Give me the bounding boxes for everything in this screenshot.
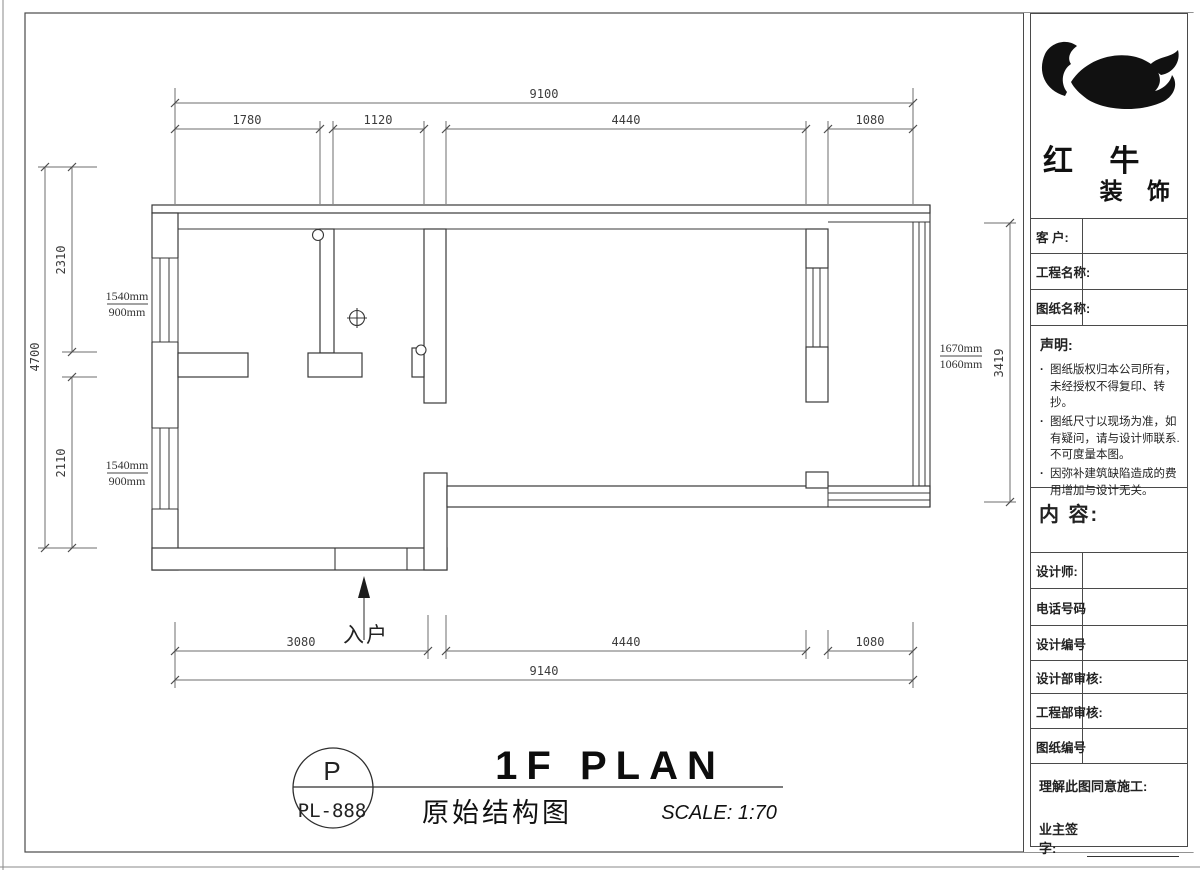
field-client-label: 客 户: (1031, 219, 1083, 253)
inner-frame (25, 13, 1193, 852)
plan-title-cn: 原始结构图 (422, 798, 572, 828)
window-tag-3-h: 1060mm (940, 357, 983, 371)
field-engineering-dept-review-label: 工程部审核: (1031, 694, 1083, 728)
notice-title: 声明: (1040, 335, 1180, 355)
field-designer: 设计师: (1031, 553, 1187, 589)
dim-top-seg2: 1120 (364, 113, 393, 127)
dimensions-top (171, 88, 917, 204)
field-drawing-no-value (1083, 729, 1187, 763)
pipe-circle-icon (416, 345, 426, 355)
field-design-no-label: 设计编号 (1031, 626, 1083, 660)
notice-item-text: 图纸尺寸以现场为准，如有疑问，请与设计师联系. 不可度量本图。 (1050, 414, 1180, 464)
drawing-sheet: 9100 1780 1120 4440 1080 4700 2310 2110 (0, 0, 1200, 870)
title-block-column: 红 牛 装 饰 客 户: 工程名称: 图纸名称: 声明: · 图纸版权归本公司所… (1030, 13, 1188, 847)
notice-item: · 图纸尺寸以现场为准，如有疑问，请与设计师联系. 不可度量本图。 (1040, 414, 1180, 464)
dim-top-seg1: 1780 (233, 113, 262, 127)
field-phone: 电话号码 (1031, 589, 1187, 626)
field-design-dept-review: 设计部审核: (1031, 661, 1187, 694)
window-tag-1-h: 900mm (109, 305, 146, 319)
field-client: 客 户: (1031, 219, 1187, 254)
window-tag-1-w: 1540mm (106, 289, 149, 303)
owner-signature-label: 业主签字: (1039, 819, 1083, 857)
field-drawing-name: 图纸名称: (1031, 290, 1187, 326)
dim-bottom-seg3: 1080 (856, 635, 885, 649)
plan-title-en: 1F PLAN (495, 744, 725, 788)
field-drawing-name-label: 图纸名称: (1031, 290, 1083, 325)
window-size-tags: 1540mm 900mm 1540mm 900mm 1670mm 1060mm (106, 289, 983, 488)
window-tag-2-h: 900mm (109, 474, 146, 488)
bullet-icon: · (1040, 362, 1050, 412)
field-designer-value (1083, 553, 1187, 588)
notice-box: 声明: · 图纸版权归本公司所有，未经授权不得复印、转抄。 · 图纸尺寸以现场为… (1031, 326, 1187, 488)
window-tag-2-w: 1540mm (106, 458, 149, 472)
bullet-icon: · (1040, 414, 1050, 464)
field-engineering-dept-review: 工程部审核: (1031, 694, 1187, 729)
brand-subname: 装 饰 (1100, 172, 1179, 206)
dim-top-overall: 9100 (530, 87, 559, 101)
brand-logo-box: 红 牛 装 饰 (1031, 14, 1187, 219)
plan-walls (152, 205, 930, 570)
content-box: 内 容: (1031, 488, 1187, 553)
signature-line (1087, 842, 1179, 857)
dim-left-seg1: 2310 (54, 246, 68, 275)
field-phone-value (1083, 589, 1187, 625)
field-designer-label: 设计师: (1031, 553, 1083, 588)
dim-bottom-seg1: 3080 (287, 635, 316, 649)
dim-top-seg4: 1080 (856, 113, 885, 127)
field-engineering-dept-review-value (1083, 694, 1187, 728)
approval-statement: 理解此图同意施工: (1039, 776, 1179, 795)
bull-logo-icon (1031, 36, 1187, 136)
content-label: 内 容: (1039, 504, 1099, 526)
entrance-arrow-icon (358, 576, 370, 598)
dim-top-seg3: 4440 (612, 113, 641, 127)
entrance-marker: 入户 (343, 576, 389, 647)
dim-right-overall: 3419 (992, 349, 1006, 378)
dim-left-overall: 4700 (28, 343, 42, 372)
approval-box: 理解此图同意施工: 业主签字: (1031, 764, 1187, 846)
field-project-name: 工程名称: (1031, 254, 1187, 290)
field-drawing-no-label: 图纸编号 (1031, 729, 1083, 763)
field-design-no-value (1083, 626, 1187, 660)
plan-scale: SCALE: 1:70 (661, 802, 777, 824)
notice-item: · 图纸版权归本公司所有，未经授权不得复印、转抄。 (1040, 362, 1180, 412)
notice-item-text: 图纸版权归本公司所有，未经授权不得复印、转抄。 (1050, 362, 1180, 412)
field-project-name-value (1083, 254, 1187, 289)
bubble-letter: P (323, 756, 340, 786)
field-project-name-label: 工程名称: (1031, 254, 1083, 289)
dim-left-seg2: 2110 (54, 449, 68, 478)
dimensions-left (38, 163, 97, 552)
pipe-circle-icon (313, 230, 324, 241)
field-drawing-name-value (1083, 290, 1187, 325)
bubble-code: PL-888 (298, 800, 367, 822)
floor-drain-icon (347, 308, 367, 328)
field-client-value (1083, 219, 1187, 253)
dim-bottom-seg2: 4440 (612, 635, 641, 649)
entrance-label: 入户 (343, 624, 389, 647)
floor-plan-canvas: 9100 1780 1120 4440 1080 4700 2310 2110 (0, 0, 1200, 870)
field-phone-label: 电话号码 (1031, 589, 1083, 625)
field-design-dept-review-label: 设计部审核: (1031, 661, 1083, 693)
field-design-no: 设计编号 (1031, 626, 1187, 661)
sheet-frame (0, 0, 1200, 870)
title-annotation: P PL-888 1F PLAN 原始结构图 SCALE: 1:70 (293, 744, 783, 828)
title-block: 红 牛 装 饰 客 户: 工程名称: 图纸名称: 声明: · 图纸版权归本公司所… (1023, 13, 1194, 852)
field-design-dept-review-value (1083, 661, 1187, 693)
window-tag-3-w: 1670mm (940, 341, 983, 355)
field-drawing-no: 图纸编号 (1031, 729, 1187, 764)
dim-bottom-overall: 9140 (530, 664, 559, 678)
